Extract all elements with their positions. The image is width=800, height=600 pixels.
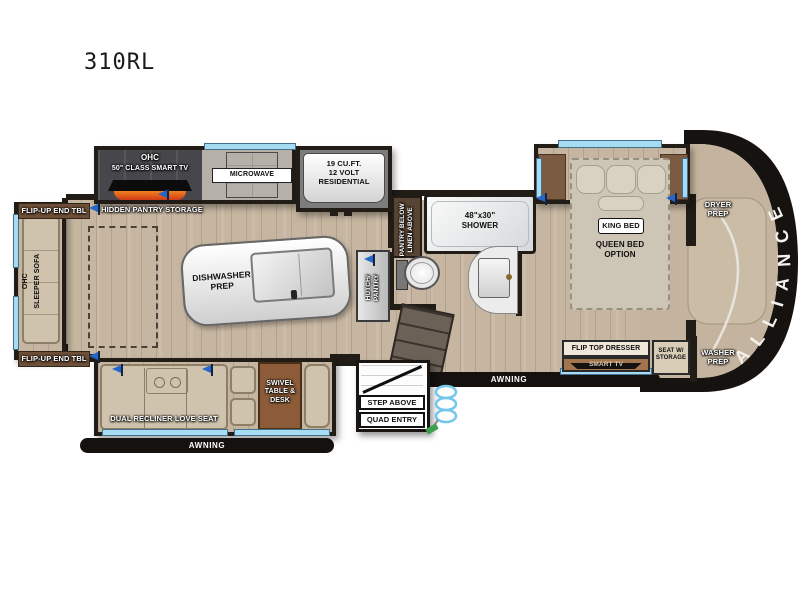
window: [13, 296, 19, 350]
pillow: [606, 165, 636, 194]
loveseat-label: DUAL RECLINER LOVE SEAT: [100, 414, 228, 423]
spray-hose-icon: [424, 380, 472, 438]
king-bed-label: KING BED: [598, 218, 644, 234]
bed: KING BED QUEEN BED OPTION: [570, 158, 670, 310]
power-outlet-flag-icon: [202, 364, 215, 377]
window: [682, 158, 688, 198]
refrigerator: 19 CU.FT. 12 VOLT RESIDENTIAL: [296, 146, 392, 212]
console-cupholders: [146, 368, 188, 394]
svg-text:ALLIANCE: ALLIANCE: [730, 194, 794, 368]
page-title: 310RL: [84, 50, 155, 75]
bench-seat: [304, 364, 330, 428]
power-outlet-flag-icon: [158, 189, 171, 202]
shower-label: 48"x30" SHOWER: [427, 211, 533, 230]
window: [558, 140, 662, 148]
seat-w-storage: SEAT W/ STORAGE: [652, 340, 690, 375]
brand-text: ALLIANCE: [730, 194, 794, 368]
end-table-top: FLIP-UP END TBL: [18, 203, 90, 219]
pillow: [576, 165, 605, 194]
swivel-table-desk: SWIVEL TABLE & DESK: [258, 362, 302, 430]
power-outlet-flag-icon: [89, 203, 102, 216]
flip-top-dresser: FLIP TOP DRESSER: [562, 340, 650, 357]
tv-screen: [108, 180, 192, 191]
floorplan: 310RL ALLIANCE OHC 50" CLASS SMART TV MI…: [0, 0, 800, 600]
cupholder: [170, 377, 181, 388]
power-outlet-flag-icon: [536, 193, 549, 206]
fireplace-icon: [114, 191, 186, 200]
fridge-foot: [330, 210, 338, 216]
refrigerator-label: 19 CU.FT. 12 VOLT RESIDENTIAL: [303, 159, 385, 186]
lumbar-pillow: [598, 196, 644, 211]
power-outlet-flag-icon: [364, 254, 377, 267]
microwave-label: MICROWAVE: [212, 168, 292, 183]
awning-left: AWNING: [80, 438, 334, 453]
queen-bed-option-label: QUEEN BED OPTION: [582, 240, 658, 259]
quad-entry-label: QUAD ENTRY: [359, 412, 425, 428]
ottoman: [230, 398, 256, 426]
option-dashed-outline: [88, 226, 158, 348]
kitchen-slide: OHC 50" CLASS SMART TV MICROWAVE: [94, 146, 296, 204]
window: [536, 158, 542, 198]
tv-label: 50" CLASS SMART TV: [95, 165, 205, 173]
step-above-label: STEP ABOVE: [359, 395, 425, 410]
window: [102, 429, 228, 436]
power-outlet-flag-icon: [666, 193, 679, 206]
swivel-table-label: SWIVEL TABLE & DESK: [260, 380, 300, 405]
power-outlet-flag-icon: [89, 351, 102, 364]
ohc-label: OHC: [98, 153, 202, 163]
window: [234, 429, 330, 436]
wall: [690, 336, 697, 382]
pantry-linen-label: PANTRY BELOW LINEN ABOVE: [399, 200, 415, 260]
toilet: [404, 256, 440, 290]
end-table-bottom: FLIP-UP END TBL: [18, 351, 90, 367]
island-sink: [250, 247, 335, 303]
living-slide: DUAL RECLINER LOVE SEAT SWIVEL TABLE & D…: [94, 358, 336, 436]
sleeper-sofa-label: SLEEPER SOFA: [34, 246, 42, 316]
washer-prep-label: WASHER PREP: [690, 348, 746, 366]
pillow: [637, 165, 666, 194]
awning-right-label: AWNING: [491, 375, 528, 384]
sofa-ohc-label: OHC: [22, 267, 30, 295]
awning-left-label: AWNING: [189, 441, 226, 450]
vanity-faucet-icon: [506, 274, 512, 280]
dresser-tv: SMART TV: [562, 357, 650, 372]
island-faucet-icon: [291, 290, 298, 299]
dryer-prep-label: DRYER PREP: [692, 200, 744, 218]
kitchen-island: DISHWASHER PREP: [179, 234, 352, 328]
ottoman: [230, 366, 256, 394]
window: [204, 143, 296, 150]
sink-divider: [298, 254, 302, 296]
island-label: DISHWASHER PREP: [189, 269, 254, 294]
power-outlet-flag-icon: [112, 364, 125, 377]
dresser-tv-label: SMART TV: [564, 361, 648, 369]
fridge-foot: [344, 210, 352, 216]
entry-door-box: STEP ABOVE QUAD ENTRY: [356, 360, 430, 432]
hidden-pantry-label: HIDDEN PANTRY STORAGE: [88, 205, 216, 214]
toilet-seat: [410, 262, 434, 284]
shower: 48"x30" SHOWER: [424, 194, 536, 254]
window: [13, 214, 19, 268]
pantry-linen-cabinet: PANTRY BELOW LINEN ABOVE: [392, 196, 422, 258]
wardrobe-door-arc: [712, 206, 738, 352]
cupholder: [154, 377, 165, 388]
